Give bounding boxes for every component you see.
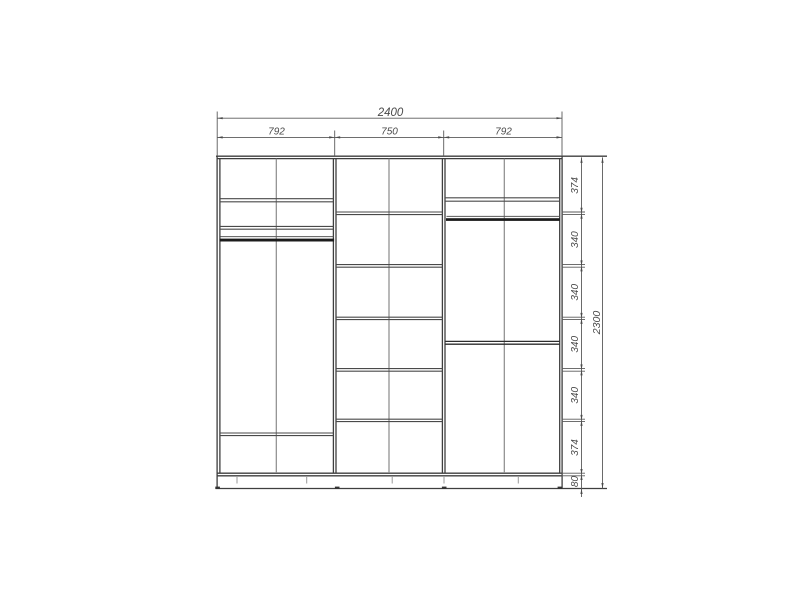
- svg-text:340: 340: [570, 336, 581, 353]
- svg-text:80: 80: [570, 476, 581, 488]
- svg-text:2400: 2400: [377, 107, 404, 119]
- svg-text:750: 750: [381, 127, 398, 138]
- svg-text:2300: 2300: [591, 311, 603, 336]
- svg-text:340: 340: [570, 387, 581, 404]
- svg-text:374: 374: [570, 177, 581, 194]
- svg-text:792: 792: [268, 127, 285, 138]
- svg-text:374: 374: [570, 439, 581, 456]
- svg-text:340: 340: [570, 231, 581, 248]
- svg-text:340: 340: [570, 284, 581, 301]
- svg-text:792: 792: [495, 127, 512, 138]
